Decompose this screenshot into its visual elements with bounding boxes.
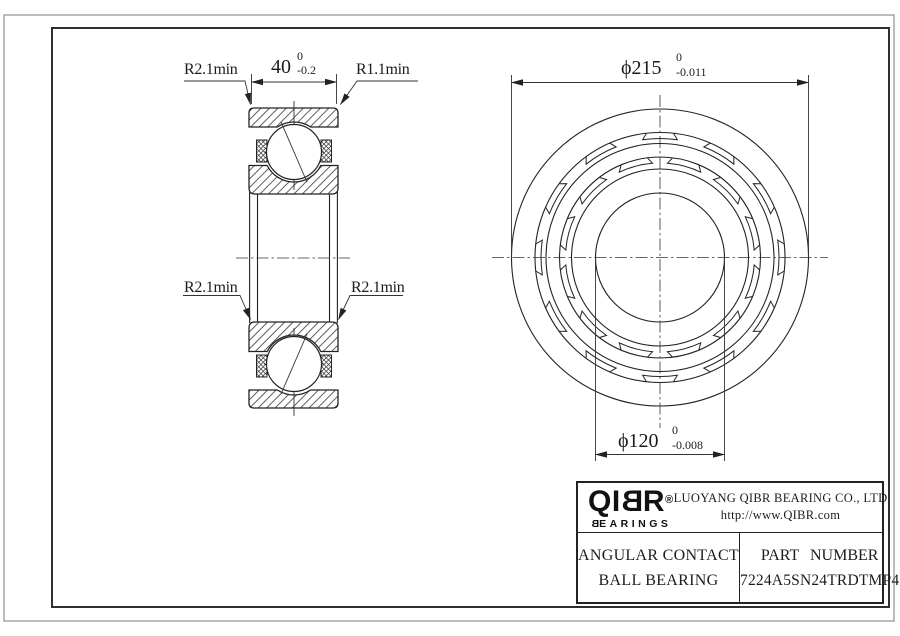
company-website: http://www.QIBR.com <box>674 506 888 525</box>
cage-section-right <box>321 355 332 377</box>
company-name: LUOYANG QIBR BEARING CO., LTD <box>674 490 888 506</box>
drawing-sheet: 40 0 -0.2 R2.1min R1.1min R2.1min R2.1mi… <box>0 0 900 636</box>
part-number-cell: PART NUMBER 7224A5SN24TRDTMP4 <box>739 533 899 604</box>
fillet-label-top-left: R2.1min <box>184 61 238 78</box>
logo-subtext: BEARINGS <box>588 518 674 530</box>
od-dim-value: ϕ215 <box>621 57 662 79</box>
part-number-label: PART NUMBER <box>740 543 899 568</box>
logo: QIBR® BEARINGS <box>578 483 674 532</box>
section-bottom-half <box>249 322 338 416</box>
part-number-value: 7224A5SN24TRDTMP4 <box>740 568 899 593</box>
fillet-label-top-right: R1.1min <box>356 61 410 78</box>
leader-line <box>184 81 251 105</box>
leader-line <box>183 296 251 320</box>
od-dim-tol-upper: 0 <box>676 50 682 64</box>
title-block-top-row: QIBR® BEARINGS LUOYANG QIBR BEARING CO.,… <box>578 483 882 533</box>
section-top-half <box>249 101 338 194</box>
bore-connector-lines <box>250 192 338 323</box>
cage-section-right <box>321 140 332 162</box>
title-block: QIBR® BEARINGS LUOYANG QIBR BEARING CO.,… <box>576 481 884 604</box>
registered-mark-icon: ® <box>665 494 674 506</box>
bore-dim-tol-upper: 0 <box>672 423 678 437</box>
company-info: LUOYANG QIBR BEARING CO., LTD http://www… <box>674 483 888 532</box>
product-line1: ANGULAR CONTACT <box>578 543 739 568</box>
leader-line <box>341 81 419 105</box>
logo-wordmark: QIBR® <box>588 487 674 517</box>
product-line2: BALL BEARING <box>578 568 739 593</box>
bore-dim-value: ϕ120 <box>618 430 659 452</box>
fillet-label-mid-right: R2.1min <box>351 279 405 296</box>
cage-section-left <box>257 355 268 377</box>
bore-dim-tol-lower: -0.008 <box>672 438 703 452</box>
leader-line <box>339 296 404 320</box>
width-dim-value: 40 <box>271 56 291 78</box>
cage-section-left <box>257 140 268 162</box>
section-view: 40 0 -0.2 R2.1min R1.1min R2.1min R2.1mi… <box>183 49 418 416</box>
title-block-bottom-row: ANGULAR CONTACT BALL BEARING PART NUMBER… <box>578 533 882 604</box>
fillet-label-mid-left: R2.1min <box>184 279 238 296</box>
front-view: ϕ215 0 -0.011 ϕ120 0 -0.008 <box>492 50 828 461</box>
width-dim-tol-upper: 0 <box>297 49 303 63</box>
outer-ring-section <box>249 390 338 408</box>
width-dimension: 40 0 -0.2 <box>252 49 337 104</box>
width-dim-tol-lower: -0.2 <box>297 63 316 77</box>
product-description: ANGULAR CONTACT BALL BEARING <box>578 533 739 604</box>
od-dim-tol-lower: -0.011 <box>676 65 707 79</box>
